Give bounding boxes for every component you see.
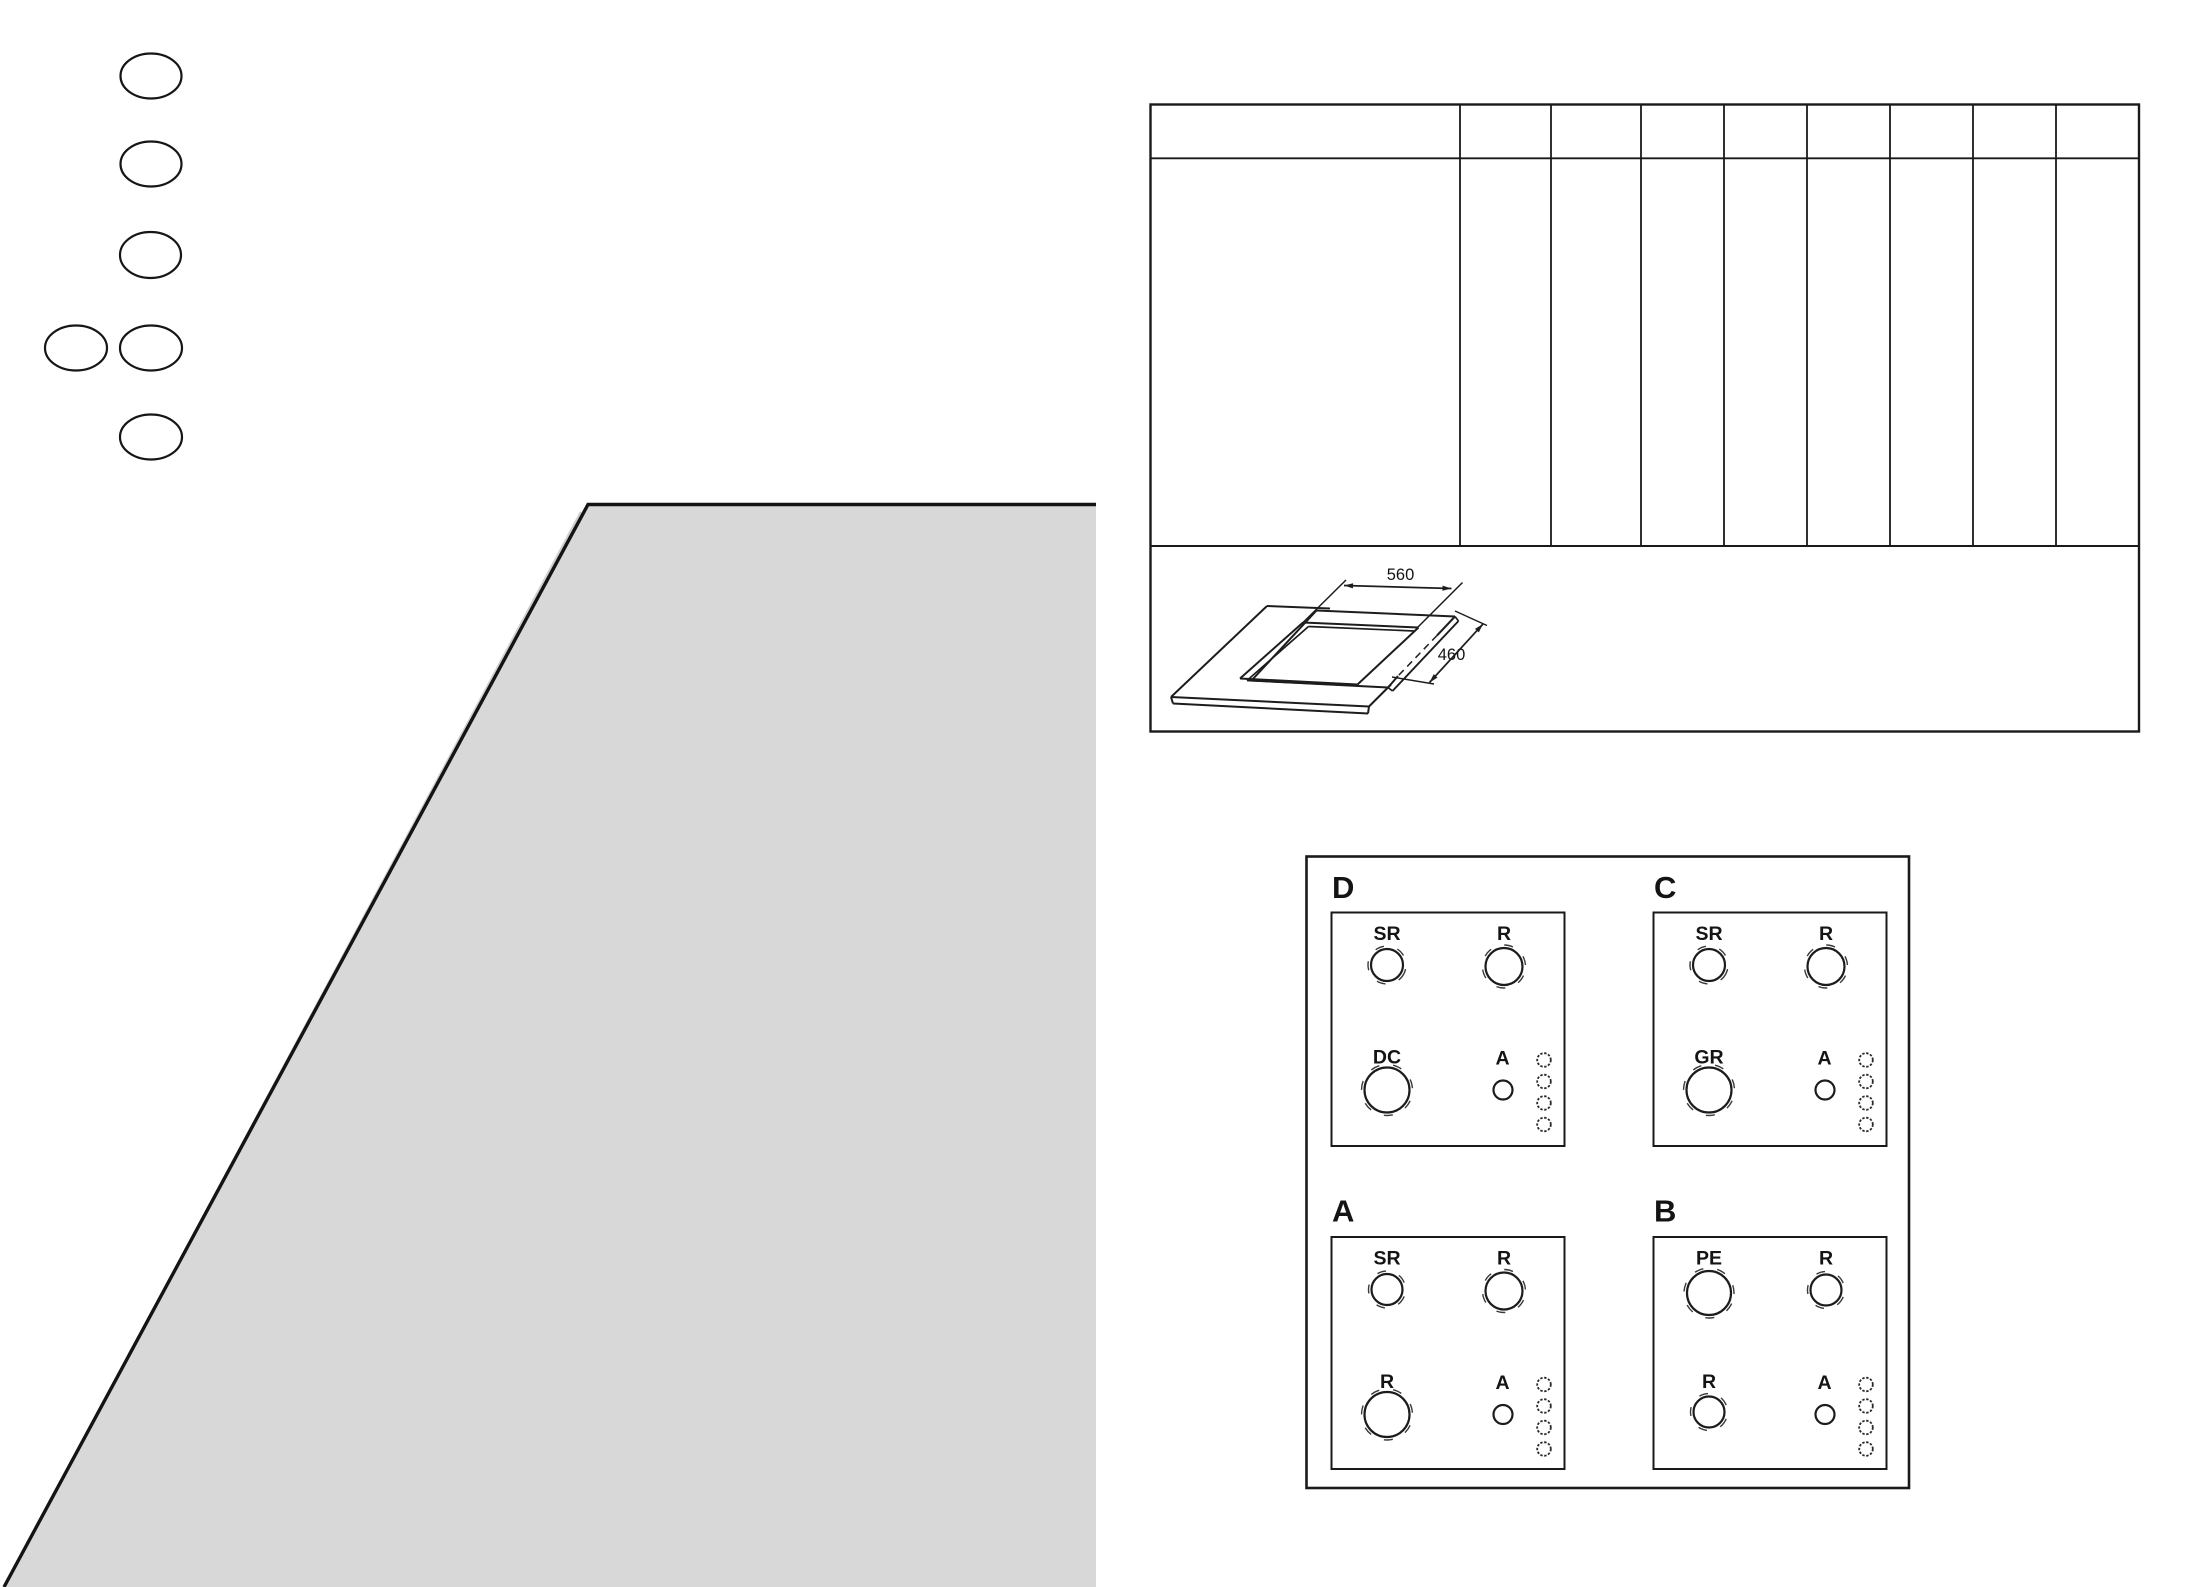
svg-text:SR: SR bbox=[1695, 923, 1722, 945]
svg-text:R: R bbox=[1702, 1371, 1716, 1393]
svg-text:R: R bbox=[1380, 1371, 1394, 1393]
svg-text:SR: SR bbox=[1373, 1248, 1400, 1270]
svg-text:PE: PE bbox=[1696, 1248, 1722, 1270]
svg-text:A: A bbox=[1332, 1194, 1354, 1229]
svg-text:A: A bbox=[1495, 1372, 1509, 1394]
svg-text:R: R bbox=[1819, 1248, 1833, 1270]
svg-text:DC: DC bbox=[1373, 1047, 1401, 1069]
svg-text:B: B bbox=[1654, 1194, 1676, 1229]
svg-text:R: R bbox=[1497, 1248, 1511, 1270]
svg-text:C: C bbox=[1654, 870, 1676, 905]
svg-text:A: A bbox=[1495, 1048, 1509, 1070]
svg-text:SR: SR bbox=[1373, 923, 1400, 945]
svg-text:A: A bbox=[1817, 1372, 1831, 1394]
svg-text:R: R bbox=[1497, 923, 1511, 945]
svg-text:560: 560 bbox=[1387, 566, 1415, 584]
svg-text:460: 460 bbox=[1438, 646, 1466, 664]
svg-text:R: R bbox=[1819, 923, 1833, 945]
svg-text:A: A bbox=[1817, 1048, 1831, 1070]
svg-text:D: D bbox=[1332, 870, 1354, 905]
svg-text:GR: GR bbox=[1694, 1047, 1723, 1069]
